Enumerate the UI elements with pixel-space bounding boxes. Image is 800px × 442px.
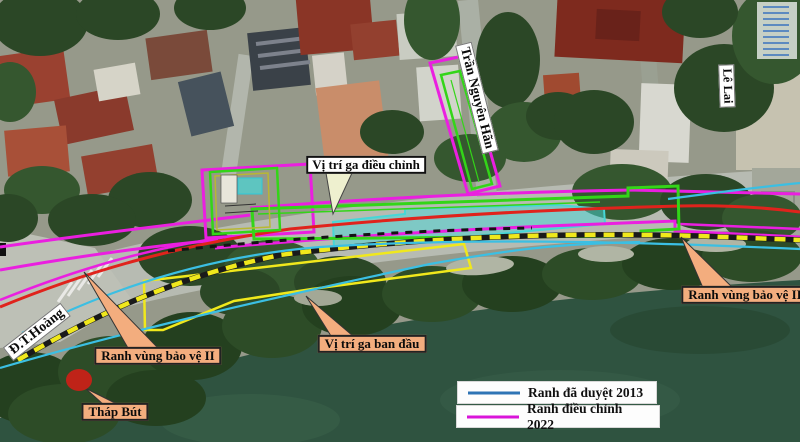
callout-station-adjusted: Vị trí ga điều chỉnh bbox=[306, 156, 426, 174]
callout-protection-zone-right: Ranh vùng bảo vệ II bbox=[681, 286, 800, 304]
thap-but-marker-dot bbox=[66, 369, 92, 391]
legend-label-2013: Ranh đã duyệt 2013 bbox=[528, 385, 643, 401]
callout-protection-zone-left: Ranh vùng bảo vệ II bbox=[94, 347, 221, 365]
street-label-le-lai: Lê Lai bbox=[718, 64, 735, 108]
legend-line-2013-swatch bbox=[468, 390, 520, 396]
map-layers-panel bbox=[757, 2, 797, 59]
legend-row-2022: Ranh điều chỉnh 2022 bbox=[457, 406, 659, 427]
legend-label-2022: Ranh điều chỉnh 2022 bbox=[527, 401, 651, 433]
satellite-planning-map: Đ.T.Hoàng Trần Nguyên Hãn Lê Lai Vị trí … bbox=[0, 0, 800, 442]
legend-line-2022-swatch bbox=[467, 414, 519, 420]
callout-station-initial: Vị trí ga ban đầu bbox=[318, 335, 427, 353]
callout-thap-but: Tháp Bút bbox=[81, 403, 148, 421]
map-canvas bbox=[0, 0, 800, 442]
